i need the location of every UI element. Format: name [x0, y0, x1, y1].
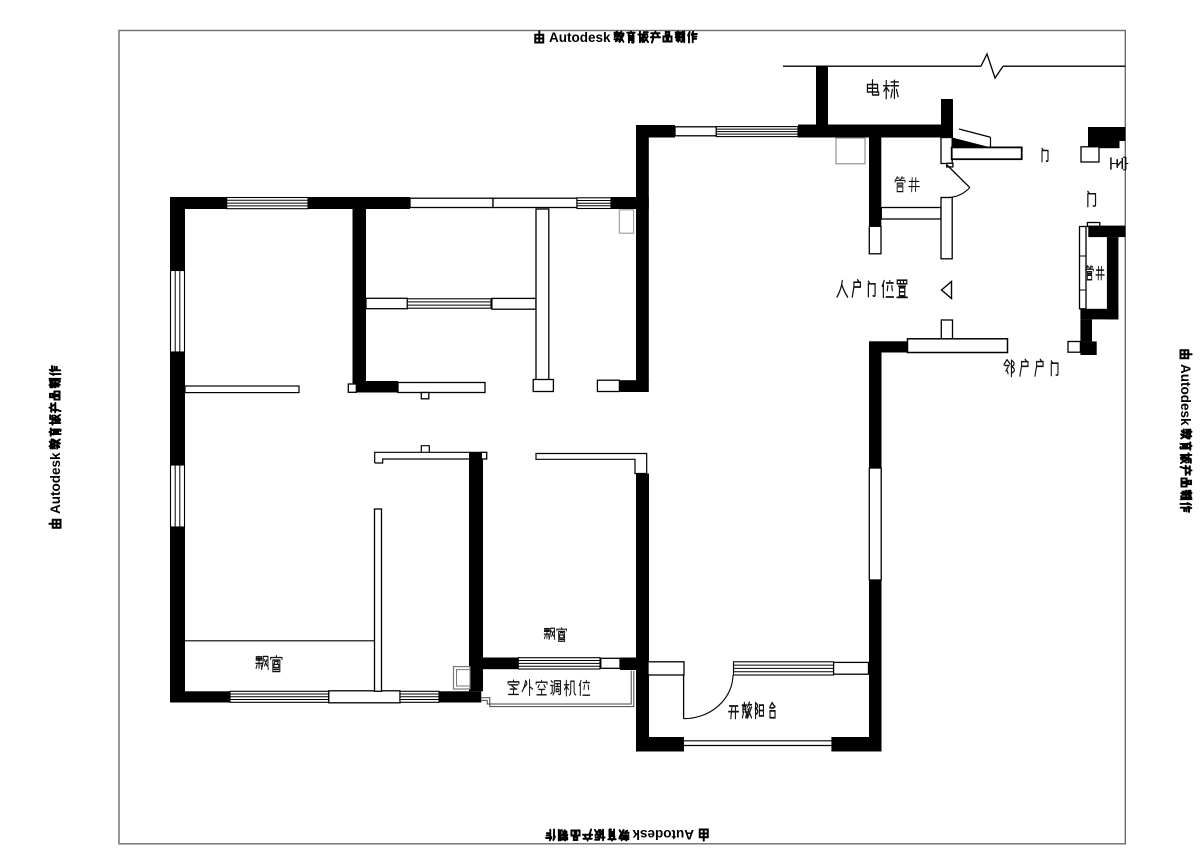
svg-text:Autodesk: Autodesk [1178, 364, 1193, 426]
svg-text:Autodesk: Autodesk [48, 452, 63, 514]
svg-text:Autodesk: Autodesk [549, 30, 611, 45]
svg-text:Autodesk: Autodesk [632, 827, 694, 842]
